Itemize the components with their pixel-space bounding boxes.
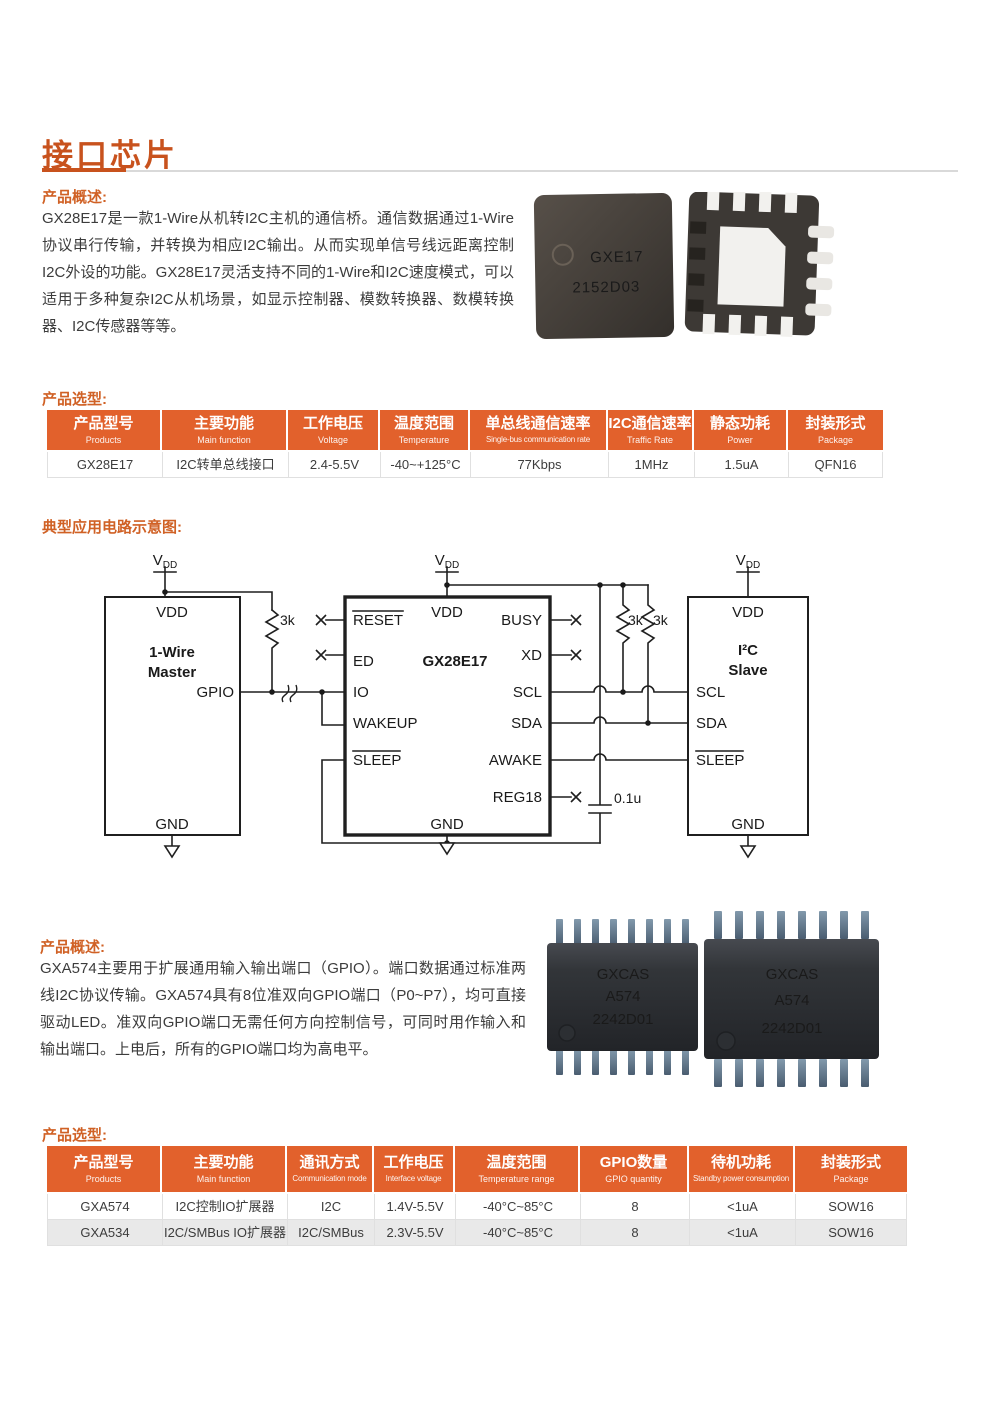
- pin-label-vdd: VDD: [732, 604, 764, 621]
- column-header: 工作电压Interface voltage: [374, 1146, 453, 1192]
- pin-label-vdd: VDD: [156, 604, 188, 621]
- column-header: 封装形式Package: [795, 1146, 907, 1192]
- pin-label-awake: AWAKE: [489, 752, 542, 769]
- pin-label-busy: BUSY: [501, 612, 542, 629]
- s1-overview-heading: 产品概述:: [42, 186, 107, 207]
- pin-label-sleep: SLEEP: [353, 752, 401, 769]
- pin-label-reg18: REG18: [493, 789, 542, 806]
- table-cell: QFN16: [789, 452, 882, 477]
- chip-marking-line1: GXE17: [590, 248, 644, 266]
- table2-header-row: 产品型号Products 主要功能Main function 通讯方式Commu…: [47, 1146, 907, 1192]
- column-header: 产品型号Products: [47, 410, 160, 450]
- title-rule-accent: [42, 168, 126, 172]
- pin-label-gnd: GND: [731, 816, 765, 833]
- s2-overview-text: GXA574主要用于扩展通用输入输出端口（GPIO）。端口数据通过标准两线I2C…: [40, 955, 526, 1063]
- pin-label-gnd: GND: [155, 816, 189, 833]
- s1-selection-heading: 产品选型:: [42, 388, 107, 409]
- column-header: 主要功能Main function: [162, 410, 286, 450]
- table-row: GXA534 I2C/SMBus IO扩展器 I2C/SMBus 2.3V-5.…: [47, 1220, 907, 1246]
- table-cell: SOW16: [796, 1220, 906, 1245]
- soic-leads-bottom: [714, 1059, 869, 1087]
- resistor-label: 3k: [628, 612, 644, 628]
- table-cell: GXA534: [48, 1220, 163, 1245]
- ground-symbols: [165, 843, 755, 857]
- soic-leads-top: [556, 919, 689, 945]
- table-cell: I2C控制IO扩展器: [163, 1194, 288, 1219]
- block-name: Slave: [728, 662, 767, 679]
- master-block: VDD 1-Wire Master GPIO GND: [105, 597, 240, 835]
- table-cell: 77Kbps: [471, 452, 609, 477]
- pin-label-io: IO: [353, 684, 369, 701]
- slave-block: VDD I²C Slave SCL SDA SLEEP GND: [688, 597, 808, 835]
- table-cell: -40~+125°C: [381, 452, 471, 477]
- table-cell: GX28E17: [48, 452, 163, 477]
- table-cell: 8: [581, 1220, 690, 1245]
- qfn-exposed-pad: [717, 226, 786, 306]
- bridge-block: VDD GX28E17 RESET ED IO WAKEUP SLEEP BUS…: [345, 597, 550, 835]
- chip-marking-line3: 2242D01: [593, 1011, 654, 1028]
- chip-marking-line1: GXCAS: [597, 966, 650, 983]
- pin-label-reset: RESET: [353, 612, 403, 629]
- table-row: GX28E17 I2C转单总线接口 2.4-5.5V -40~+125°C 77…: [47, 452, 883, 478]
- column-header: 待机功耗Standby power consumption: [689, 1146, 793, 1192]
- chip-photos-soic: GXCAS A574 2242D01: [540, 903, 980, 1103]
- pin-label-wakeup: WAKEUP: [353, 715, 417, 732]
- pin-label-gnd: GND: [430, 816, 464, 833]
- title-rule: [42, 170, 958, 172]
- table-cell: -40°C~85°C: [456, 1194, 581, 1219]
- table-cell: <1uA: [690, 1194, 796, 1219]
- column-header: 封装形式Package: [788, 410, 883, 450]
- pin-label-scl: SCL: [513, 684, 542, 701]
- table-cell: 1.4V-5.5V: [375, 1194, 456, 1219]
- column-header: 产品型号Products: [47, 1146, 160, 1192]
- circuit-heading: 典型应用电路示意图:: [42, 516, 182, 537]
- capacitor-label: 0.1u: [614, 790, 641, 806]
- s2-selection-heading: 产品选型:: [42, 1124, 107, 1145]
- product-table-1: 产品型号Products 主要功能Main function 工作电压Volta…: [47, 410, 883, 478]
- column-header: 温度范围Temperature: [380, 410, 468, 450]
- chip-qfn-back: [681, 192, 851, 342]
- table-cell: 2.3V-5.5V: [375, 1220, 456, 1245]
- column-header: 静态功耗Power: [694, 410, 786, 450]
- block-name: GX28E17: [422, 653, 487, 670]
- pin-label-gpio: GPIO: [196, 684, 234, 701]
- datasheet-page: 接口芯片 产品概述: GX28E17是一款1-Wire从机转I2C主机的通信桥。…: [0, 0, 1000, 1426]
- resistor-label: 3k: [653, 612, 669, 628]
- table-cell: -40°C~85°C: [456, 1220, 581, 1245]
- pin1-dot: [559, 1025, 575, 1041]
- qfn-body: [534, 193, 674, 339]
- column-header: 工作电压Voltage: [288, 410, 378, 450]
- pin-label-vdd: VDD: [431, 604, 463, 621]
- chip-marking-line2: A574: [774, 992, 809, 1009]
- pin-label-xd: XD: [521, 647, 542, 664]
- s1-overview-text: GX28E17是一款1-Wire从机转I2C主机的通信桥。通信数据通过1-Wir…: [42, 205, 514, 340]
- product-table-2: 产品型号Products 主要功能Main function 通讯方式Commu…: [47, 1146, 907, 1246]
- column-header: 通讯方式Communication mode: [287, 1146, 372, 1192]
- pin1-dot: [717, 1032, 735, 1050]
- table-cell: 2.4-5.5V: [289, 452, 381, 477]
- block-name: Master: [148, 664, 197, 681]
- soic-leads-top: [714, 911, 869, 939]
- chip-soic-large: GXCAS A574 2242D01: [700, 907, 892, 1091]
- soic-leads-bottom: [556, 1049, 689, 1075]
- chip-marking-line2: 2152D03: [572, 278, 640, 296]
- circuit-diagram: VDD VDD VDD VDD 1-Wire Master GPIO GND V…: [40, 545, 960, 915]
- column-header: GPIO数量GPIO quantity: [580, 1146, 687, 1192]
- table-cell: <1uA: [690, 1220, 796, 1245]
- chip-soic-small: GXCAS A574 2242D01: [545, 917, 701, 1079]
- table-cell: I2C: [288, 1194, 375, 1219]
- pin-label-sda: SDA: [696, 715, 727, 732]
- table-cell: 1MHz: [609, 452, 695, 477]
- chip-marking-line1: GXCAS: [766, 966, 819, 983]
- table-cell: I2C转单总线接口: [163, 452, 289, 477]
- table-cell: 1.5uA: [695, 452, 789, 477]
- column-header: 温度范围Temperature range: [455, 1146, 578, 1192]
- table-row: GXA574 I2C控制IO扩展器 I2C 1.4V-5.5V -40°C~85…: [47, 1194, 907, 1220]
- table-cell: 8: [581, 1194, 690, 1219]
- pin-label-sleep: SLEEP: [696, 752, 744, 769]
- vdd-symbols: VDD VDD VDD: [153, 552, 760, 597]
- table1-header-row: 产品型号Products 主要功能Main function 工作电压Volta…: [47, 410, 883, 450]
- column-header: 主要功能Main function: [162, 1146, 285, 1192]
- chip-marking-line2: A574: [605, 988, 640, 1005]
- block-name: I²C: [738, 642, 758, 659]
- block-name: 1-Wire: [149, 644, 195, 661]
- chip-photos-qfn: GXE17 2152D03: [525, 182, 975, 352]
- table-cell: I2C/SMBus: [288, 1220, 375, 1245]
- pin-label-ed: ED: [353, 653, 374, 670]
- chip-qfn-front: GXE17 2152D03: [533, 190, 675, 342]
- chip-marking-line3: 2242D01: [762, 1020, 823, 1037]
- pin-label-scl: SCL: [696, 684, 725, 701]
- s2-overview-heading: 产品概述:: [40, 936, 105, 957]
- column-header: I2C通信速率Traffic Rate: [608, 410, 692, 450]
- wire-break-symbol: [282, 685, 297, 702]
- pin-label-sda: SDA: [511, 715, 542, 732]
- resistor-label: 3k: [280, 612, 296, 628]
- table-cell: SOW16: [796, 1194, 906, 1219]
- table-cell: I2C/SMBus IO扩展器: [163, 1220, 288, 1245]
- column-header: 单总线通信速率Single-bus communication rate: [470, 410, 606, 450]
- table-cell: GXA574: [48, 1194, 163, 1219]
- no-connect-marks: [316, 615, 581, 802]
